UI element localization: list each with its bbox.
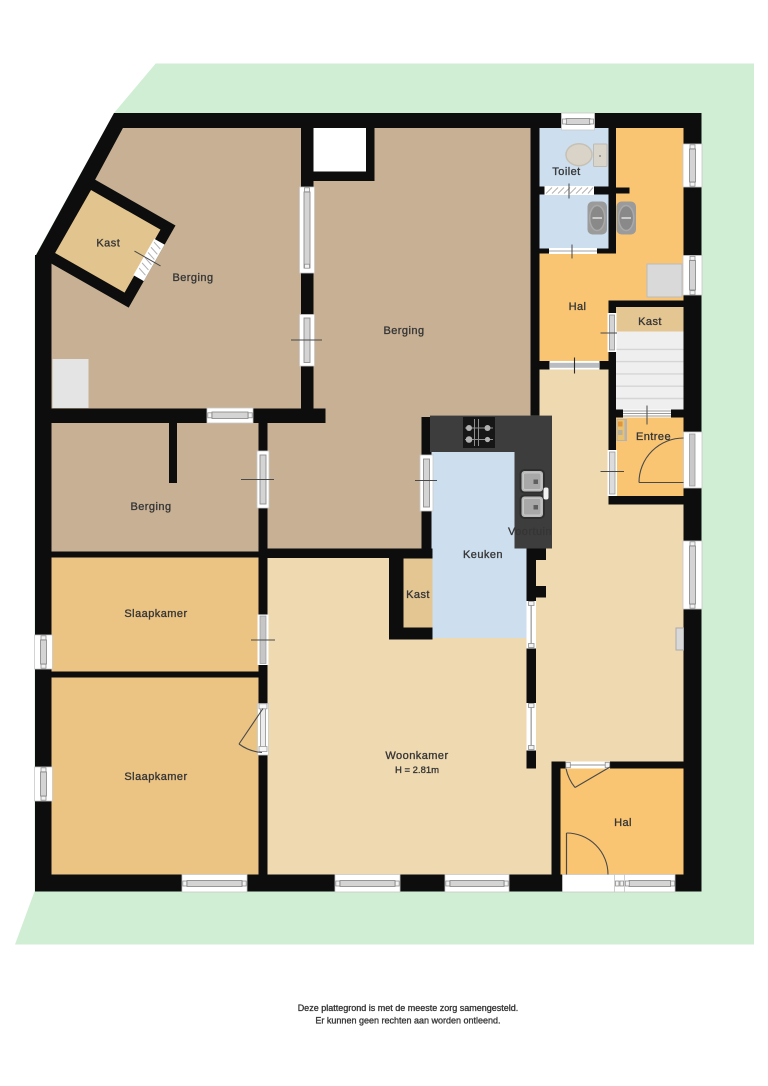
svg-text:Hal: Hal — [569, 301, 587, 313]
svg-text:Woonkamer: Woonkamer — [385, 750, 448, 762]
svg-text:Kast: Kast — [406, 589, 430, 601]
svg-text:Kast: Kast — [96, 238, 120, 250]
svg-text:Berging: Berging — [130, 501, 171, 513]
svg-text:Slaapkamer: Slaapkamer — [124, 608, 187, 620]
svg-text:Kast: Kast — [638, 316, 662, 328]
svg-text:Toilet: Toilet — [552, 166, 580, 178]
svg-text:Entree: Entree — [636, 431, 671, 443]
svg-text:H = 2.81m: H = 2.81m — [395, 765, 439, 776]
svg-text:Slaapkamer: Slaapkamer — [124, 771, 187, 783]
svg-text:Deze plattegrond is met de mee: Deze plattegrond is met de meeste zorg s… — [298, 1003, 519, 1013]
svg-text:Keuken: Keuken — [463, 549, 503, 561]
svg-text:Hal: Hal — [614, 817, 632, 829]
svg-text:Voortuin: Voortuin — [508, 526, 552, 538]
svg-text:Berging: Berging — [172, 272, 213, 284]
svg-text:Er kunnen geen rechten aan wor: Er kunnen geen rechten aan worden ontlee… — [315, 1016, 500, 1026]
svg-text:Berging: Berging — [383, 325, 424, 337]
